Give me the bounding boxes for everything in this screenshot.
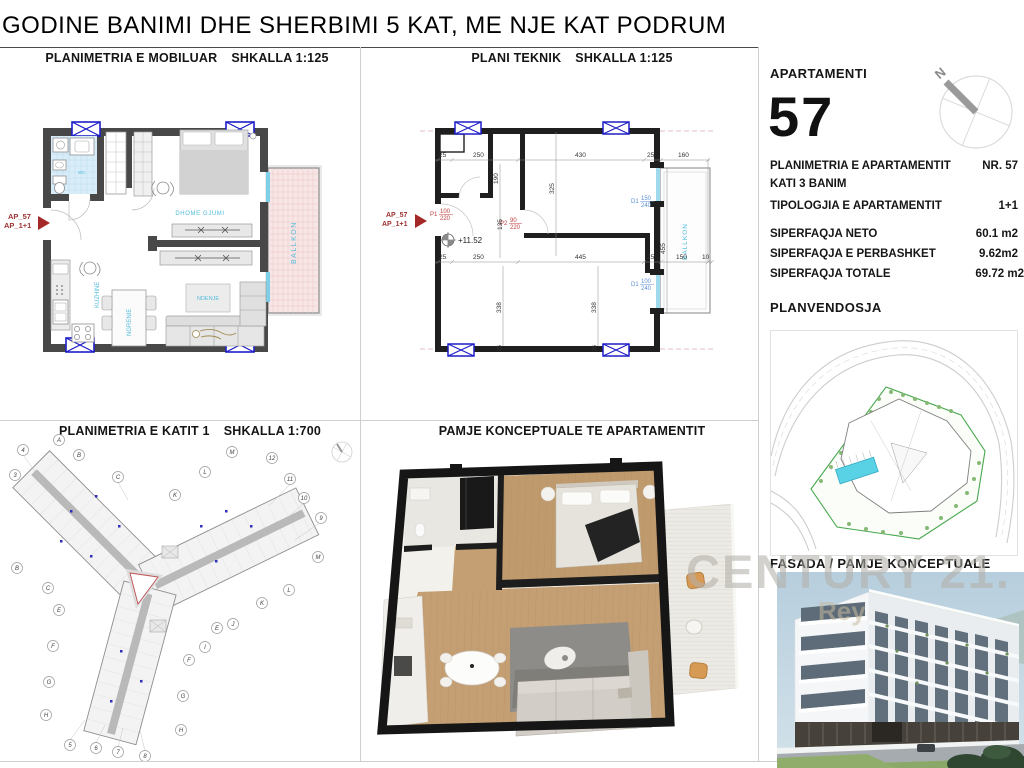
win1-width: 150 bbox=[641, 196, 652, 202]
person-figure bbox=[193, 331, 200, 338]
window-marker bbox=[72, 122, 100, 136]
win1-height: 240 bbox=[641, 203, 652, 209]
balcony-table bbox=[686, 620, 702, 634]
dim: 160 bbox=[678, 152, 689, 159]
page-title: GODINE BANIMI DHE SHERBIMI 5 KAT, ME NJE… bbox=[2, 12, 726, 40]
win2-width: 100 bbox=[641, 279, 652, 285]
dining-label: NGRENIE bbox=[127, 309, 133, 336]
area-label: SIPERFAQJA NETO bbox=[770, 228, 877, 240]
header-technical-title: PLANI TEKNIK bbox=[471, 51, 561, 65]
axis-bubble: L bbox=[203, 470, 206, 476]
apartment-number: 57 bbox=[768, 84, 834, 149]
area-label: SIPERFAQJA E PERBASHKET bbox=[770, 248, 936, 260]
siteplan-heading: PLANVENDOSJA bbox=[770, 300, 882, 315]
axis-bubble: G bbox=[47, 680, 52, 686]
marker-line1: AP_57 bbox=[386, 212, 408, 219]
balcony-3d bbox=[665, 504, 737, 695]
info-label: TIPOLOGJIA E APARTAMENTIT bbox=[770, 200, 942, 212]
apartment-heading: APARTAMENTI bbox=[770, 66, 867, 81]
axis-bubble: 10 bbox=[301, 496, 308, 502]
floor1-plan: 4 A B C K L M 12 11 10 9 M 3 B C E F G H… bbox=[0, 430, 360, 761]
area-value: 69.72 m2 bbox=[975, 268, 1024, 280]
axis-bubble: A bbox=[56, 438, 61, 444]
axis-bubble: C bbox=[46, 586, 51, 592]
info-label: PLANIMETRIA E APARTAMENTIT bbox=[770, 160, 951, 172]
dim: 338 bbox=[496, 302, 503, 313]
marker-line1: AP_57 bbox=[8, 212, 31, 221]
axis-bubble: L bbox=[287, 588, 290, 594]
marker-line2: AP_1+1 bbox=[382, 221, 408, 228]
dim: 325 bbox=[549, 183, 556, 194]
technical-plan: BALLKON bbox=[360, 68, 758, 420]
divider-horizontal bbox=[0, 420, 758, 421]
balcony: BALLKON bbox=[656, 168, 710, 313]
living-label: NDENJE bbox=[197, 296, 219, 302]
dim: 25 bbox=[497, 345, 503, 351]
floor1-compass-icon bbox=[332, 442, 352, 462]
apartment-marker: AP_57 AP_1+1 bbox=[4, 212, 50, 230]
dim: 25 bbox=[647, 254, 655, 261]
tv-cabinet bbox=[172, 224, 252, 237]
dim: 25 bbox=[439, 254, 447, 261]
axis-bubble: B bbox=[15, 566, 19, 572]
kitchen: KUZHINE NGRENIE bbox=[51, 260, 156, 346]
dim: 25 bbox=[439, 152, 447, 159]
bathroom: WC bbox=[51, 136, 97, 220]
divider-vertical-2 bbox=[758, 47, 759, 761]
header-furnished-plan: PLANIMETRIA E MOBILUARSHKALLA 1:125 bbox=[45, 51, 328, 65]
header-technical-plan: PLANI TEKNIKSHKALLA 1:125 bbox=[471, 51, 672, 65]
dim: 430 bbox=[575, 152, 586, 159]
info-label: KATI 3 BANIM bbox=[770, 178, 846, 190]
door-arcs bbox=[441, 177, 548, 236]
axis-bubble: M bbox=[316, 555, 321, 561]
fasada-heading: FASADA / PAMJE KONCEPTUALE bbox=[770, 556, 991, 571]
balcony-chair bbox=[689, 662, 707, 679]
area-value: 60.1 m2 bbox=[976, 228, 1018, 240]
info-row: TIPOLOGJIA E APARTAMENTIT 1+1 bbox=[770, 200, 1018, 212]
siteplan-drawing bbox=[771, 331, 1017, 555]
header-technical-scale: SHKALLA 1:125 bbox=[575, 51, 672, 65]
axis-bubble: 12 bbox=[269, 456, 276, 462]
info-value: NR. 57 bbox=[982, 160, 1018, 172]
apartment-marker: AP_57 AP_1+1 bbox=[382, 212, 427, 228]
door1-id: P1 bbox=[430, 212, 438, 218]
dim: 445 bbox=[575, 254, 586, 261]
person-figure bbox=[84, 262, 96, 274]
building-wings bbox=[13, 451, 319, 745]
marker-arrow-icon bbox=[415, 214, 427, 228]
balcony: BALLKON bbox=[266, 166, 321, 315]
area-row: SIPERFAQJA NETO 60.1 m2 bbox=[770, 228, 1018, 240]
win2-height: 240 bbox=[641, 286, 652, 292]
door2-height: 220 bbox=[510, 225, 521, 231]
area-row: SIPERFAQJA E PERBASHKET 9.62m2 bbox=[770, 248, 1018, 260]
dim: 250 bbox=[473, 152, 484, 159]
info-value: 1+1 bbox=[998, 200, 1018, 212]
win2-id: D1 bbox=[631, 282, 639, 288]
door-labels: P1 100 220 P2 90 220 bbox=[430, 209, 522, 231]
win1-id: D1 bbox=[631, 199, 639, 205]
level-value: +11.52 bbox=[458, 236, 483, 245]
axis-bubble: H bbox=[44, 713, 49, 719]
marker-arrow-icon bbox=[38, 216, 50, 230]
bath-door-arc bbox=[69, 199, 90, 220]
area-row: SIPERFAQJA TOTALE 69.72 m2 bbox=[770, 268, 1024, 280]
dim: 338 bbox=[591, 302, 598, 313]
window-labels: D1 150 240 D1 100 240 bbox=[631, 196, 654, 292]
header-furnished-title: PLANIMETRIA E MOBILUAR bbox=[45, 51, 217, 65]
niche bbox=[440, 134, 464, 152]
area-value: 9.62m2 bbox=[979, 248, 1018, 260]
marker-line2: AP_1+1 bbox=[4, 221, 31, 230]
area-label: SIPERFAQJA TOTALE bbox=[770, 268, 891, 280]
chair-figure bbox=[157, 182, 169, 194]
balcony-chair bbox=[686, 572, 705, 589]
kitchen-label: KUZHINE bbox=[95, 282, 101, 308]
axis-bubble: F bbox=[51, 644, 55, 650]
dim: 250 bbox=[473, 254, 484, 261]
bedroom-label: DHOME GJUMI bbox=[175, 211, 224, 217]
level-marker: +11.52 bbox=[440, 232, 483, 248]
axis-bubble: C bbox=[116, 475, 121, 481]
fasada-render bbox=[777, 572, 1024, 768]
axis-bubble: 11 bbox=[287, 477, 293, 483]
car bbox=[917, 744, 935, 752]
header-furnished-scale: SHKALLA 1:125 bbox=[231, 51, 328, 65]
bedroom: DHOME GJUMI bbox=[134, 130, 256, 237]
door2-width: 90 bbox=[510, 218, 517, 224]
dim: 455 bbox=[660, 243, 667, 254]
compass-north-label: N bbox=[932, 64, 949, 82]
lamp bbox=[250, 133, 256, 139]
info-row: PLANIMETRIA E APARTAMENTIT NR. 57 bbox=[770, 160, 1018, 172]
compass-icon: N bbox=[928, 62, 1020, 154]
axis-bubble: H bbox=[179, 728, 184, 734]
title-underline bbox=[0, 47, 758, 48]
dim: 150 bbox=[676, 254, 687, 261]
door1-width: 100 bbox=[440, 209, 451, 215]
living-room: NDENJE bbox=[160, 251, 266, 346]
dim: 190 bbox=[493, 173, 500, 184]
dim: 135 bbox=[497, 219, 504, 230]
bathroom-3d bbox=[404, 474, 498, 552]
dim: 10 bbox=[702, 254, 710, 261]
info-row: KATI 3 BANIM bbox=[770, 178, 1018, 190]
fasada-panel bbox=[777, 572, 1024, 768]
axis-bubble: G bbox=[181, 694, 186, 700]
plan-sheet: GODINE BANIMI DHE SHERBIMI 5 KAT, ME NJE… bbox=[0, 0, 1024, 768]
balcony-label: BALLKON bbox=[291, 221, 298, 264]
render3d bbox=[360, 430, 758, 761]
dim: 25 bbox=[592, 345, 598, 351]
dim: 25 bbox=[647, 152, 655, 159]
door1-height: 220 bbox=[440, 216, 451, 222]
furnished-plan: BALLKON bbox=[0, 68, 360, 420]
axis-bubble: F bbox=[187, 658, 191, 664]
axis-bubble: M bbox=[230, 450, 235, 456]
bath-label: WC bbox=[78, 170, 86, 175]
siteplan-panel bbox=[770, 330, 1018, 556]
axis-bubble: B bbox=[77, 453, 81, 459]
